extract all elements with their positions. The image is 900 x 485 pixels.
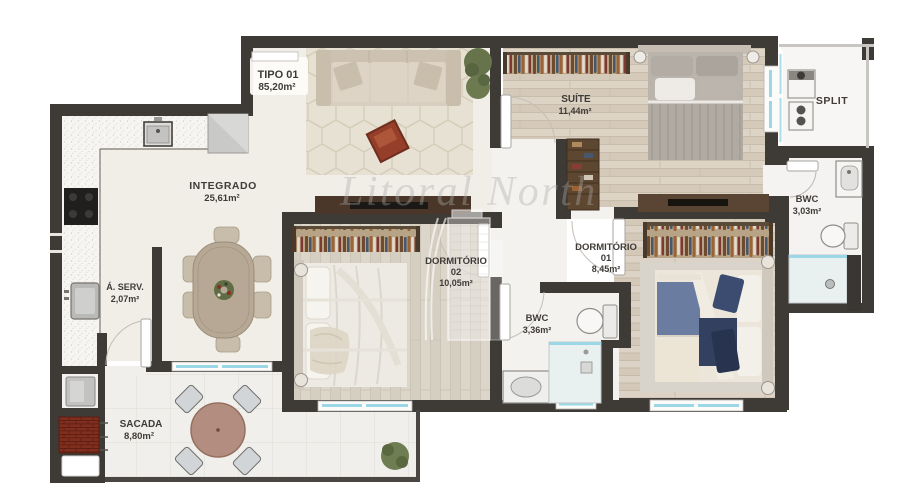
svg-text:02: 02 — [451, 267, 462, 278]
svg-text:85,20m²: 85,20m² — [258, 82, 296, 93]
svg-text:25,61m²: 25,61m² — [204, 193, 239, 204]
svg-text:TIPO 01: TIPO 01 — [258, 69, 299, 81]
svg-text:Á. SERV.: Á. SERV. — [106, 282, 144, 292]
svg-text:SACADA: SACADA — [120, 419, 163, 430]
svg-text:8,45m²: 8,45m² — [592, 264, 621, 274]
svg-text:BWC: BWC — [796, 194, 819, 205]
svg-text:8,80m²: 8,80m² — [124, 431, 154, 442]
svg-text:2,07m²: 2,07m² — [111, 294, 140, 304]
svg-text:11,44m²: 11,44m² — [558, 106, 591, 116]
svg-text:01: 01 — [601, 253, 612, 264]
svg-text:3,36m²: 3,36m² — [523, 325, 552, 335]
svg-text:10,05m²: 10,05m² — [439, 278, 473, 288]
svg-text:Litoral North: Litoral North — [339, 169, 598, 215]
svg-text:SPLIT: SPLIT — [816, 95, 848, 107]
svg-text:SUÍTE: SUÍTE — [561, 92, 591, 105]
svg-text:DORMITÓRIO: DORMITÓRIO — [425, 255, 487, 267]
svg-text:BWC: BWC — [526, 313, 549, 324]
svg-text:3,03m²: 3,03m² — [793, 206, 822, 216]
svg-text:DORMITÓRIO: DORMITÓRIO — [575, 241, 637, 253]
svg-text:INTEGRADO: INTEGRADO — [189, 180, 257, 192]
